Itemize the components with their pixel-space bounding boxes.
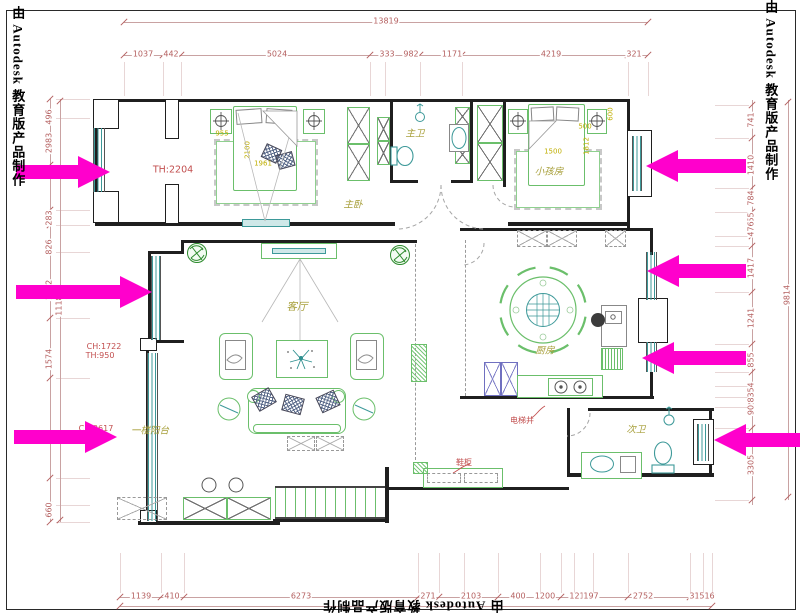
dim-label: 741 bbox=[748, 111, 757, 128]
wardrobe-cabinet bbox=[377, 141, 390, 165]
shaft-label: 电梯井 bbox=[510, 417, 534, 425]
wardrobe-cabinet bbox=[347, 107, 370, 144]
wall-segment bbox=[567, 408, 570, 476]
dim-extension bbox=[464, 553, 465, 593]
dim-label: 1171 bbox=[441, 51, 463, 60]
dim-label: 1241 bbox=[748, 307, 757, 329]
dim-extension bbox=[715, 236, 749, 237]
wardrobe-cabinet bbox=[477, 143, 503, 181]
furniture-dim-label: 1961 bbox=[254, 161, 272, 168]
dim-extension bbox=[462, 62, 463, 96]
callout-arrow-right-3 bbox=[674, 351, 746, 365]
wall-segment bbox=[385, 467, 389, 523]
wall-segment bbox=[627, 99, 630, 133]
room-label-balcony: 一楼阳台 bbox=[131, 426, 169, 436]
ceiling-height-label-1b: TH:950 bbox=[86, 352, 115, 360]
dim-extension bbox=[56, 210, 90, 211]
dim-label: 516 bbox=[698, 593, 715, 602]
dim-label: 197 bbox=[582, 593, 599, 602]
dim-label: 5024 bbox=[266, 51, 288, 60]
dim-extension bbox=[370, 62, 371, 96]
watermark-bottom: 由 Autodesk 教育版产品制作 bbox=[306, 598, 520, 612]
dim-label: 410 bbox=[163, 593, 180, 602]
armchair-seat bbox=[356, 340, 377, 370]
dim-extension bbox=[498, 553, 499, 593]
dim-label: 442 bbox=[162, 51, 179, 60]
dim-extension bbox=[628, 62, 629, 96]
nightstand bbox=[303, 109, 325, 134]
dim-label: 333 bbox=[378, 51, 395, 60]
corner-basket bbox=[501, 362, 518, 396]
wall-segment bbox=[138, 521, 280, 525]
nightstand bbox=[508, 109, 528, 134]
dim-extension bbox=[715, 188, 749, 189]
dim-tick bbox=[644, 51, 651, 58]
callout-arrow-right-2 bbox=[679, 264, 746, 278]
cabinet bbox=[117, 497, 167, 520]
dim-extension bbox=[593, 553, 594, 593]
cabinet bbox=[605, 230, 626, 247]
dim-extension bbox=[124, 62, 125, 96]
window-band bbox=[697, 424, 709, 461]
dim-label: 784 bbox=[748, 189, 757, 206]
dim-label: 13819 bbox=[372, 18, 399, 27]
coffee-table bbox=[276, 340, 328, 378]
callout-arrow-left-3-head bbox=[85, 421, 117, 453]
dim-label: 476 bbox=[748, 220, 757, 237]
dim-extension bbox=[715, 138, 749, 139]
furniture-dim-label: 2100 bbox=[245, 141, 252, 159]
dim-label: 1139 bbox=[130, 593, 152, 602]
room-label-kitchen: 厨房 bbox=[535, 346, 554, 356]
cabinet bbox=[547, 230, 577, 247]
dim-extension bbox=[385, 62, 386, 96]
pillow bbox=[531, 106, 555, 121]
dim-extension bbox=[56, 505, 90, 506]
dim-extension bbox=[574, 553, 575, 593]
watermark-left: 由 Autodesk 教育版产品制作 bbox=[10, 6, 24, 187]
sink-basin bbox=[605, 311, 622, 324]
room-label-kids-room: 小孩房 bbox=[535, 167, 564, 177]
dim-extension bbox=[56, 118, 90, 119]
dim-extension bbox=[56, 225, 90, 226]
callout-arrow-right-3-head bbox=[642, 342, 674, 374]
room-label-second-bath: 次卫 bbox=[626, 425, 645, 435]
furniture-dim-label: 1500 bbox=[544, 149, 562, 156]
shoe-cabinet-shelf bbox=[427, 473, 461, 483]
pillow bbox=[556, 106, 580, 121]
tv-screen bbox=[242, 219, 290, 227]
dim-extension bbox=[715, 386, 749, 387]
wall-jog bbox=[165, 99, 179, 139]
dim-tick bbox=[644, 18, 651, 25]
furniture-dim-label: 600 bbox=[608, 107, 615, 120]
dim-label: 283 bbox=[46, 209, 55, 226]
wall-jog bbox=[93, 191, 119, 223]
dim-extension bbox=[163, 62, 164, 96]
dim-extension bbox=[161, 553, 162, 593]
window-band bbox=[147, 353, 158, 521]
wall-segment bbox=[508, 222, 630, 226]
dim-extension bbox=[712, 553, 713, 593]
dim-extension bbox=[715, 292, 749, 293]
column-hatch bbox=[413, 462, 428, 474]
callout-arrow-left-3 bbox=[14, 430, 85, 444]
wall-segment bbox=[503, 99, 506, 187]
corner-basket bbox=[484, 362, 501, 396]
dim-label: 1037 bbox=[132, 51, 154, 60]
dim-label: 982 bbox=[402, 51, 419, 60]
dim-extension bbox=[439, 553, 440, 593]
dim-extension bbox=[715, 372, 749, 373]
dim-label: 1410 bbox=[748, 154, 757, 176]
dim-tick bbox=[708, 602, 715, 609]
wall-jog bbox=[165, 184, 179, 224]
dim-tick bbox=[46, 518, 53, 525]
wall-segment bbox=[390, 99, 393, 183]
unit-number-label: TH:2204 bbox=[153, 165, 193, 175]
watermark-right: 由 Autodesk 教育版产品制作 bbox=[763, 0, 777, 181]
dim-extension bbox=[715, 105, 749, 106]
dim-extension bbox=[703, 553, 704, 593]
dim-extension bbox=[181, 62, 182, 96]
callout-arrow-right-4-head bbox=[714, 424, 746, 456]
wall-segment bbox=[588, 408, 714, 411]
dim-label: 2752 bbox=[632, 593, 654, 602]
dim-label: 4219 bbox=[540, 51, 562, 60]
dim-extension bbox=[715, 246, 749, 247]
callout-arrow-right-1 bbox=[678, 159, 746, 173]
cad-sheet: 1381910374425024333982117142193211139410… bbox=[0, 0, 800, 615]
dim-label: 1200 bbox=[534, 593, 556, 602]
dim-extension bbox=[561, 553, 562, 593]
shoe-cabinet-label: 鞋柜 bbox=[456, 459, 472, 467]
shoe-cabinet-shelf bbox=[464, 473, 498, 483]
dim-extension bbox=[715, 344, 749, 345]
dim-label: 2983 bbox=[46, 132, 55, 154]
dim-extension bbox=[715, 212, 749, 213]
dim-extension bbox=[418, 553, 419, 593]
cabinet bbox=[517, 230, 547, 247]
wall-segment bbox=[627, 198, 630, 231]
square-sink bbox=[620, 456, 636, 473]
wall-segment bbox=[148, 251, 184, 254]
dim-extension bbox=[420, 62, 421, 96]
pillow bbox=[266, 108, 293, 125]
dim-label: 90 bbox=[748, 404, 757, 416]
wardrobe-cabinet bbox=[183, 497, 227, 520]
callout-arrow-left-2 bbox=[16, 285, 120, 299]
dim-extension bbox=[540, 553, 541, 593]
dim-extension bbox=[56, 318, 90, 319]
ceiling-height-label-1: CH:1722 bbox=[87, 343, 122, 351]
dim-extension bbox=[628, 553, 629, 593]
dim-extension bbox=[715, 500, 749, 501]
cabinet bbox=[287, 436, 315, 451]
room-label-master-bath: 主卫 bbox=[405, 129, 424, 139]
column-hatch bbox=[411, 344, 427, 382]
armchair-seat bbox=[225, 340, 246, 370]
callout-arrow-right-1-head bbox=[646, 150, 678, 182]
tv-screen bbox=[272, 248, 326, 254]
window-band bbox=[632, 136, 642, 191]
dim-extension bbox=[56, 478, 90, 479]
wardrobe-cabinet bbox=[477, 105, 503, 143]
dim-label: 660 bbox=[46, 501, 55, 518]
dim-label: 1574 bbox=[46, 348, 55, 370]
wall-segment bbox=[650, 228, 653, 255]
dim-extension bbox=[56, 252, 90, 253]
callout-arrow-right-2-head bbox=[647, 255, 679, 287]
wall-segment bbox=[470, 99, 473, 183]
callout-arrow-left-1-head bbox=[78, 156, 110, 188]
sofa-front bbox=[253, 424, 341, 433]
dim-label: 855 bbox=[748, 351, 757, 368]
dim-label: 3305 bbox=[748, 454, 757, 476]
dim-label: 826 bbox=[46, 238, 55, 255]
pillow bbox=[236, 108, 263, 125]
dim-extension bbox=[715, 407, 749, 408]
opening-dashed bbox=[465, 240, 467, 396]
wall-jog bbox=[638, 298, 668, 343]
dim-label: 496 bbox=[46, 108, 55, 125]
callout-arrow-left-2-head bbox=[120, 276, 152, 308]
wall-segment bbox=[390, 180, 418, 183]
stove bbox=[548, 378, 593, 396]
staircase bbox=[275, 486, 385, 519]
callout-arrow-right-4 bbox=[746, 433, 800, 447]
wardrobe-cabinet bbox=[347, 144, 370, 181]
vent-cabinet bbox=[601, 348, 623, 370]
window-band bbox=[151, 256, 161, 340]
dim-extension bbox=[690, 553, 691, 593]
dim-extension bbox=[648, 62, 649, 96]
dim-label: 9814 bbox=[784, 284, 793, 306]
callout-arrow-left-1 bbox=[16, 165, 78, 179]
dim-extension bbox=[56, 378, 90, 379]
dim-extension bbox=[715, 397, 749, 398]
wall-jog bbox=[93, 99, 119, 129]
wall-segment bbox=[273, 519, 389, 522]
wall-segment bbox=[650, 372, 653, 399]
dim-extension bbox=[56, 522, 90, 523]
cabinet bbox=[316, 436, 344, 451]
furniture-dim-label: 955 bbox=[215, 131, 228, 138]
dim-label: 321 bbox=[625, 51, 642, 60]
wardrobe-cabinet bbox=[227, 497, 271, 520]
furniture-dim-label: 500 bbox=[578, 124, 591, 131]
wall-segment bbox=[451, 180, 473, 183]
dim-extension bbox=[184, 553, 185, 593]
vanity bbox=[449, 124, 469, 152]
room-label-living-room: 客厅 bbox=[287, 302, 308, 313]
dim-label: 1417 bbox=[748, 257, 757, 279]
dim-extension bbox=[120, 553, 121, 593]
wardrobe-cabinet bbox=[377, 117, 390, 141]
room-label-master-bedroom: 主卧 bbox=[343, 200, 362, 210]
furniture-dim-label: 1812 bbox=[584, 137, 591, 155]
